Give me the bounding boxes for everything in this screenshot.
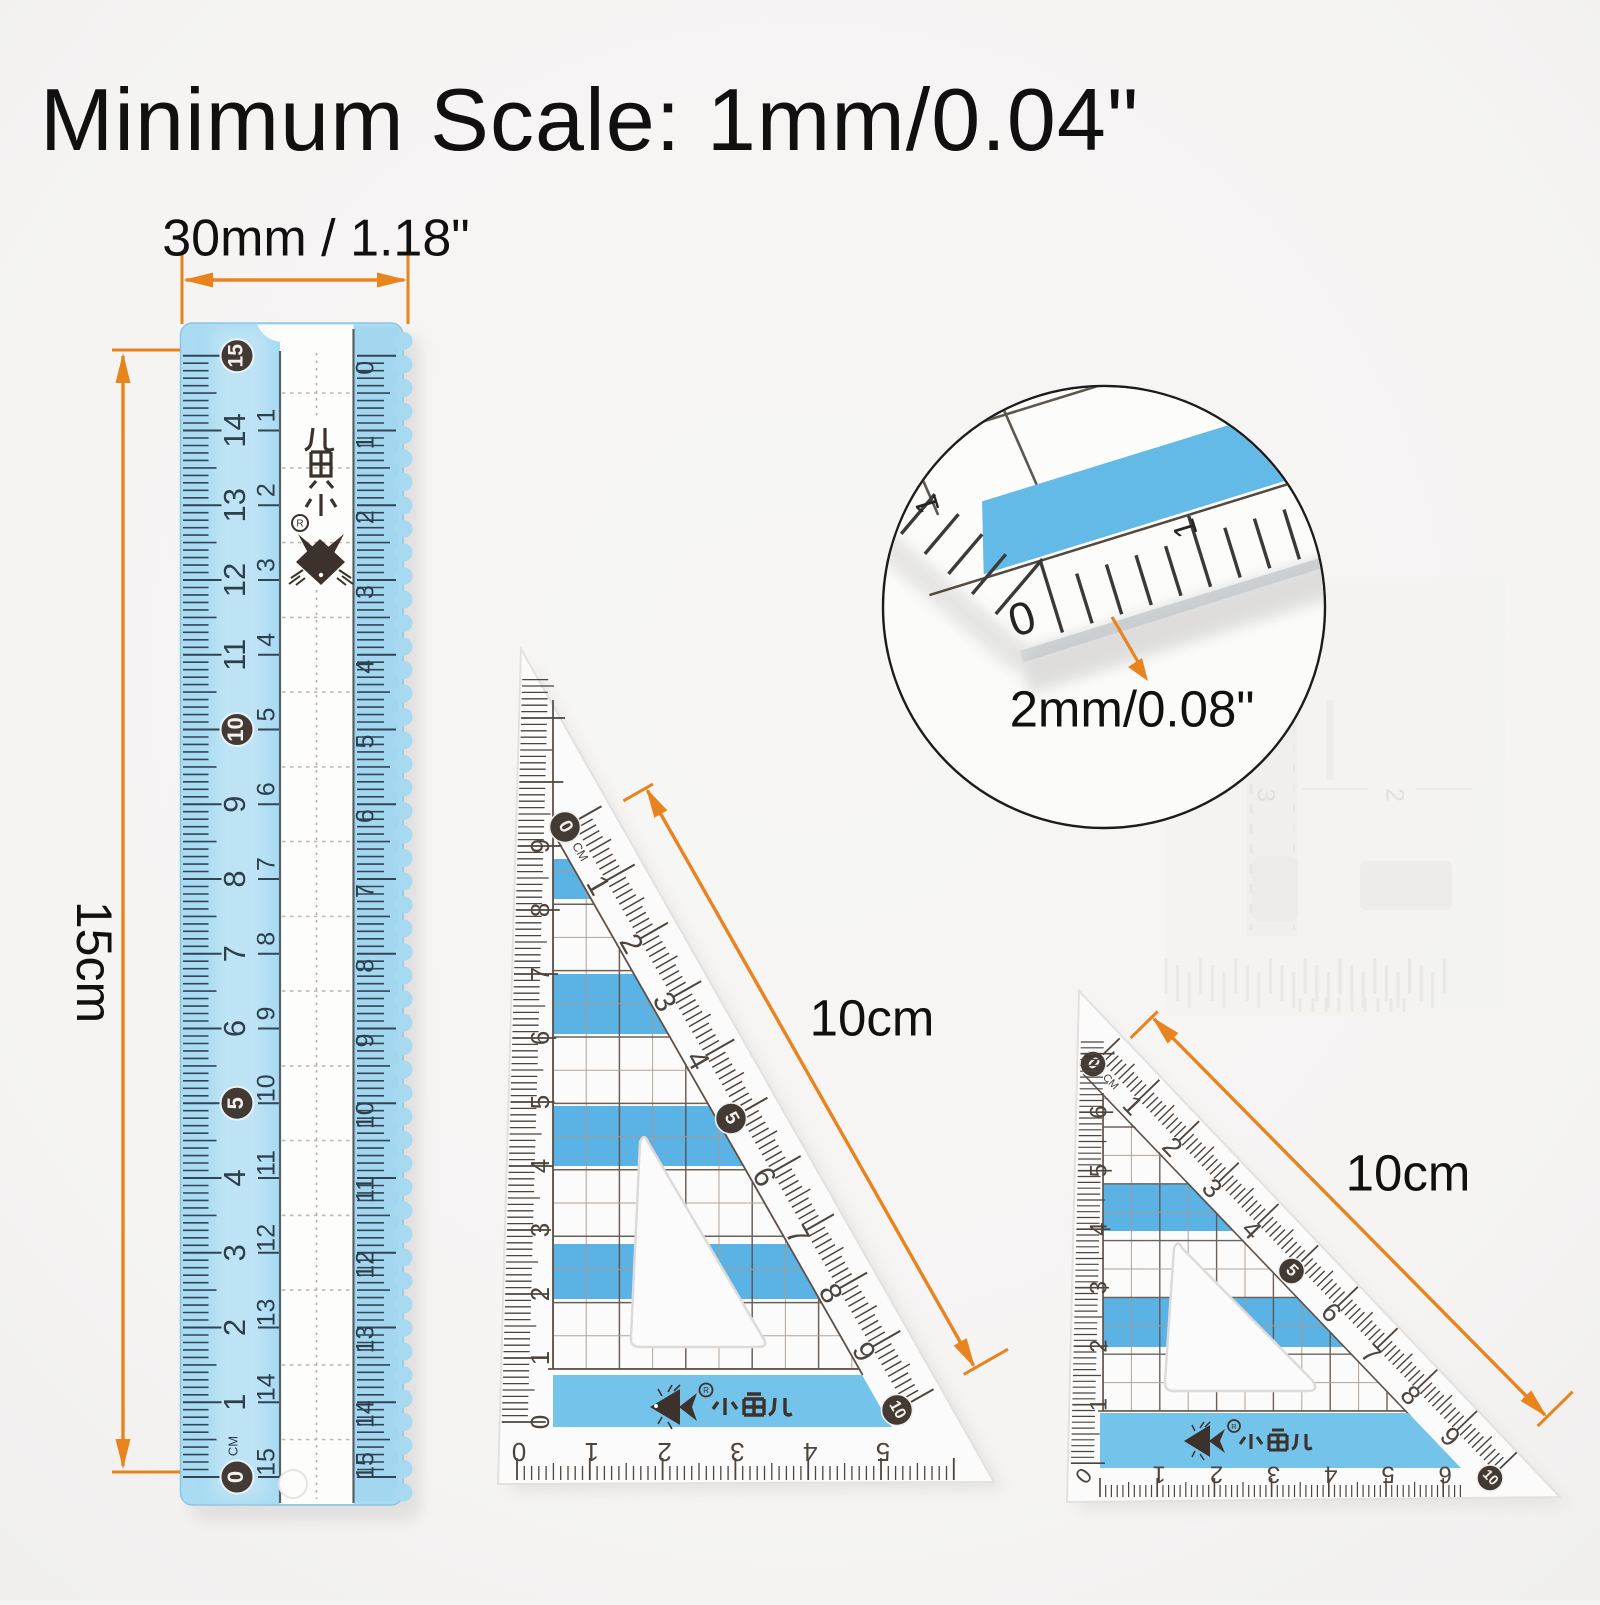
svg-text:1: 1 [1085,1398,1112,1411]
svg-text:14: 14 [217,413,252,447]
svg-text:12: 12 [352,1251,380,1279]
svg-text:6: 6 [253,782,281,796]
svg-text:5: 5 [876,1437,890,1467]
svg-text:9: 9 [253,1007,281,1021]
svg-text:4: 4 [217,1169,252,1186]
svg-text:4: 4 [1085,1222,1112,1235]
svg-text:CM: CM [225,1436,240,1456]
svg-text:14: 14 [253,1373,281,1401]
svg-text:2: 2 [525,1287,555,1301]
svg-text:11: 11 [253,1150,281,1176]
svg-text:R: R [703,1386,709,1395]
svg-text:8: 8 [253,932,281,946]
svg-text:1: 1 [352,436,380,450]
svg-text:1: 1 [525,1351,555,1365]
svg-text:7: 7 [352,884,380,898]
svg-text:4: 4 [253,633,281,647]
svg-text:8: 8 [352,959,380,973]
svg-text:1: 1 [217,1394,252,1411]
svg-text:6: 6 [525,1031,555,1045]
svg-text:1: 1 [253,409,281,423]
svg-text:3: 3 [730,1437,744,1467]
svg-text:5: 5 [1381,1461,1394,1488]
svg-text:9: 9 [217,796,252,813]
svg-text:2: 2 [217,1319,252,1336]
svg-text:2: 2 [657,1437,671,1467]
svg-text:2: 2 [253,483,281,497]
svg-text:7: 7 [217,945,252,962]
svg-text:3: 3 [253,558,281,572]
svg-text:2: 2 [1210,1461,1223,1488]
svg-text:7: 7 [253,857,281,871]
svg-text:5: 5 [223,1097,248,1109]
svg-text:15cm: 15cm [66,901,122,1023]
svg-text:R: R [296,519,303,530]
svg-text:10: 10 [352,1101,380,1129]
svg-text:13: 13 [253,1299,281,1327]
svg-text:10: 10 [253,1074,281,1102]
svg-text:3: 3 [1251,788,1279,802]
svg-text:6: 6 [217,1020,252,1037]
svg-text:3: 3 [352,585,380,599]
svg-text:8: 8 [525,903,555,917]
svg-text:0: 0 [223,1471,248,1483]
svg-text:15: 15 [352,1452,380,1480]
svg-text:3: 3 [525,1223,555,1237]
svg-text:13: 13 [352,1326,380,1354]
svg-text:4: 4 [1324,1461,1337,1488]
svg-text:2: 2 [1380,788,1408,802]
svg-text:4: 4 [525,1159,555,1173]
svg-text:2: 2 [352,510,380,524]
svg-text:11: 11 [352,1177,380,1203]
svg-text:Minimum Scale: 1mm/0.04": Minimum Scale: 1mm/0.04" [40,70,1139,169]
svg-text:R: R [1231,1422,1237,1431]
svg-text:30mm / 1.18": 30mm / 1.18" [162,210,469,268]
svg-text:3: 3 [217,1244,252,1261]
svg-text:5: 5 [253,708,281,722]
svg-text:12: 12 [217,563,252,597]
svg-text:10cm: 10cm [1346,1144,1471,1201]
svg-text:9: 9 [352,1034,380,1048]
svg-text:0: 0 [352,361,380,375]
svg-text:10: 10 [223,717,248,741]
svg-text:13: 13 [217,488,252,522]
svg-text:1: 1 [585,1437,599,1467]
svg-text:3: 3 [1267,1461,1280,1488]
svg-text:14: 14 [352,1400,380,1428]
svg-text:0: 0 [525,1415,555,1429]
svg-text:5: 5 [1085,1164,1112,1177]
svg-text:6: 6 [1439,1461,1452,1488]
svg-text:2: 2 [1085,1339,1112,1352]
svg-text:8: 8 [217,870,252,887]
svg-text:15: 15 [253,1448,281,1476]
svg-text:3: 3 [1085,1281,1112,1294]
svg-text:0: 0 [512,1437,526,1467]
svg-text:2mm/0.08": 2mm/0.08" [1010,680,1255,737]
svg-text:9: 9 [525,839,555,853]
svg-text:4: 4 [803,1437,817,1467]
svg-text:12: 12 [253,1224,281,1252]
svg-text:5: 5 [525,1095,555,1109]
svg-text:7: 7 [525,967,555,981]
svg-text:1: 1 [1153,1461,1166,1488]
svg-text:6: 6 [352,809,380,823]
svg-text:6: 6 [1085,1105,1112,1118]
svg-text:11: 11 [217,639,252,671]
svg-text:4: 4 [352,660,380,674]
svg-text:10cm: 10cm [810,989,935,1046]
svg-text:15: 15 [225,344,248,368]
svg-text:5: 5 [352,735,380,749]
